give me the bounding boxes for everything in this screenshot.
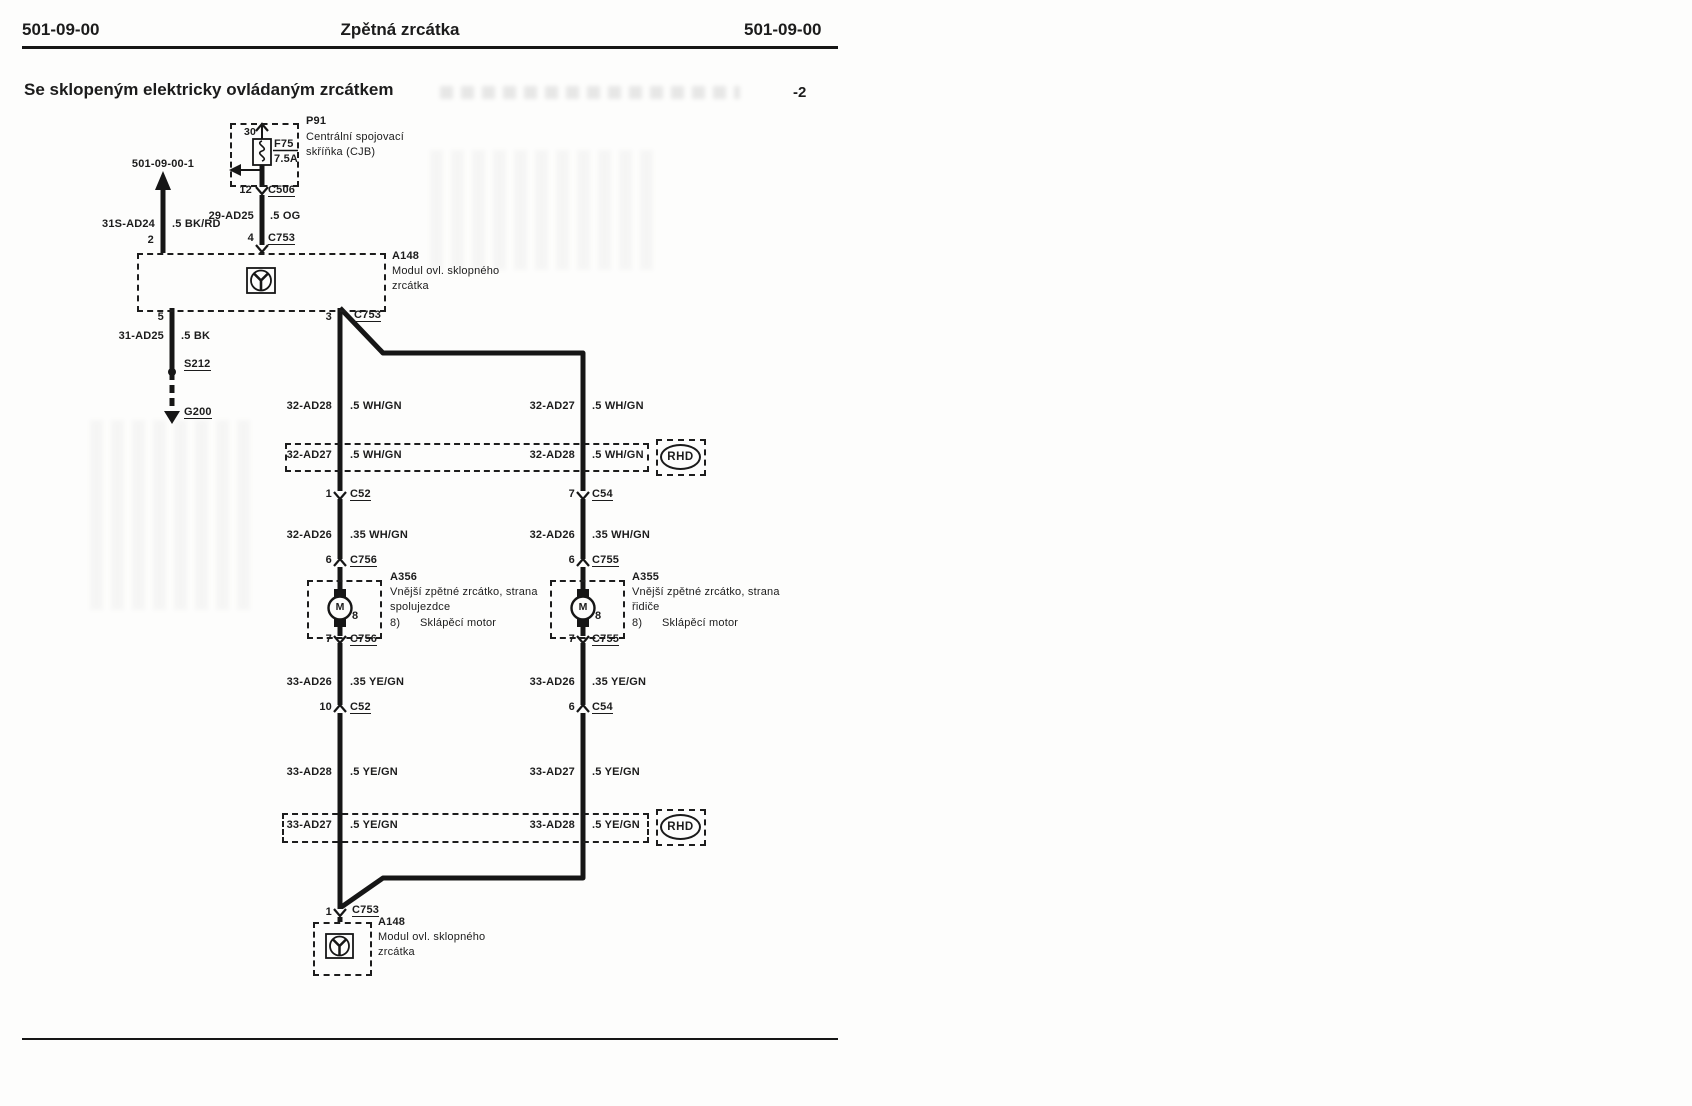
connector-label: C755 [592,554,619,567]
pin-number: 6 [308,554,332,567]
wire-gauge-label: .5 BK [181,330,210,343]
component-desc: Vnější zpětné zrcátko, strana [632,586,780,599]
component-desc: Modul ovl. sklopného [378,931,485,944]
wire-circuit-label: 32-AD28 [240,400,332,413]
fuse-name: F75 [274,138,294,151]
wire-circuit-label: 32-AD26 [240,529,332,542]
component-id: A356 [390,571,417,584]
rhd-wire-circuit-label: 32-AD28 [483,449,575,462]
wire-runs [163,123,583,922]
wire-circuit-label: 31S-AD24 [85,218,155,231]
pin-number: 2 [130,234,154,247]
component-id: P91 [306,115,326,128]
wire-gauge-label: .35 WH/GN [350,529,408,542]
rhd-wire-circuit-label: 32-AD27 [240,449,332,462]
pin-number: 12 [228,184,252,197]
legend-item-number: 8) [390,617,400,630]
scanned-wiring-diagram-page: 501-09-00 Zpětná zrcátka 501-09-00 Se sk… [0,0,1692,1106]
component-id: A148 [392,250,419,263]
connector-label: C506 [268,184,295,197]
connector-label: C52 [350,701,371,714]
wire-gauge-label: .35 WH/GN [592,529,650,542]
pin-number: 6 [551,701,575,714]
wire-gauge-label: .5 BK/RD [172,218,221,231]
wire-circuit-label: 33-AD26 [483,676,575,689]
offpage-reference: 501-09-00-1 [110,158,216,171]
component-desc: Centrální spojovací [306,131,404,144]
wire-gauge-label: .35 YE/GN [350,676,404,689]
pin-number: 10 [304,701,332,714]
rhd-wire-circuit-label: 33-AD27 [240,819,332,832]
rhd-wire-gauge-label: .5 WH/GN [592,449,644,462]
wire-circuit-label: 31-AD25 [92,330,164,343]
wire-gauge-label: .5 YE/GN [592,766,640,779]
module-a148-top-outline [137,253,386,312]
splice-label: S212 [184,358,211,371]
mirror-a355-outline [550,580,625,639]
rhd-wire-gauge-label: .5 WH/GN [350,449,402,462]
wire-circuit-label: 32-AD26 [483,529,575,542]
ground-label: G200 [184,406,212,419]
module-a148-bottom-outline [313,922,372,976]
component-desc: zrcátka [378,946,415,959]
pin-number: 1 [304,906,332,919]
pin-number: 5 [140,311,164,324]
ground-symbol-icon [164,411,180,424]
component-id: A148 [378,916,405,929]
connector-label: C54 [592,488,613,501]
connector-label: C52 [350,488,371,501]
connector-label: C753 [268,232,295,245]
pin-number: 7 [551,488,575,501]
component-desc: řidiče [632,601,660,614]
pin-number: 7 [551,633,575,646]
pin-number: 3 [308,311,332,324]
rhd-lower-badge-outline: RHD [656,809,706,846]
rhd-wire-gauge-label: .5 YE/GN [350,819,398,832]
wire-circuit-label: 33-AD27 [483,766,575,779]
wire-circuit-label: 33-AD28 [240,766,332,779]
legend-item-label: Sklápěcí motor [662,617,738,630]
component-desc: Modul ovl. sklopného [392,265,499,278]
wire-gauge-label: .5 WH/GN [350,400,402,413]
connector-label: C756 [350,633,377,646]
callout-number: 8 [352,610,358,623]
footer-rule [22,1038,838,1040]
wire-circuit-label: 33-AD26 [240,676,332,689]
mirror-a356-outline [307,580,382,639]
wire-gauge-label: .35 YE/GN [592,676,646,689]
connector-label: C755 [592,633,619,646]
wire-gauge-label: .5 YE/GN [350,766,398,779]
fuse-pin-number: 30 [244,126,256,139]
pin-number: 6 [551,554,575,567]
rhd-badge: RHD [660,444,701,470]
connector-label: C756 [350,554,377,567]
splice-dot-icon [168,368,176,376]
wire-gauge-label: .5 WH/GN [592,400,644,413]
pin-number: 1 [308,488,332,501]
callout-number: 8 [595,610,601,623]
component-id: A355 [632,571,659,584]
wire-gauge-label: .5 OG [270,210,300,223]
component-desc: spolujezdce [390,601,450,614]
fuse-rating: 7.5A [274,153,298,166]
rhd-wire-gauge-label: .5 YE/GN [592,819,640,832]
component-desc: Vnější zpětné zrcátko, strana [390,586,538,599]
connector-label: C753 [352,904,379,917]
connector-chevron-icons [256,124,589,916]
pin-number: 7 [308,633,332,646]
connector-label: C54 [592,701,613,714]
component-desc: zrcátka [392,280,429,293]
legend-item-number: 8) [632,617,642,630]
rhd-wire-circuit-label: 33-AD28 [483,819,575,832]
pin-number: 4 [230,232,254,245]
wire-circuit-label: 32-AD27 [483,400,575,413]
rhd-upper-badge-outline: RHD [656,439,706,476]
rhd-badge: RHD [660,814,701,840]
connector-label: C753 [354,309,381,322]
component-desc: skříňka (CJB) [306,146,375,159]
legend-item-label: Sklápěcí motor [420,617,496,630]
offpage-arrow-icon [155,171,171,190]
